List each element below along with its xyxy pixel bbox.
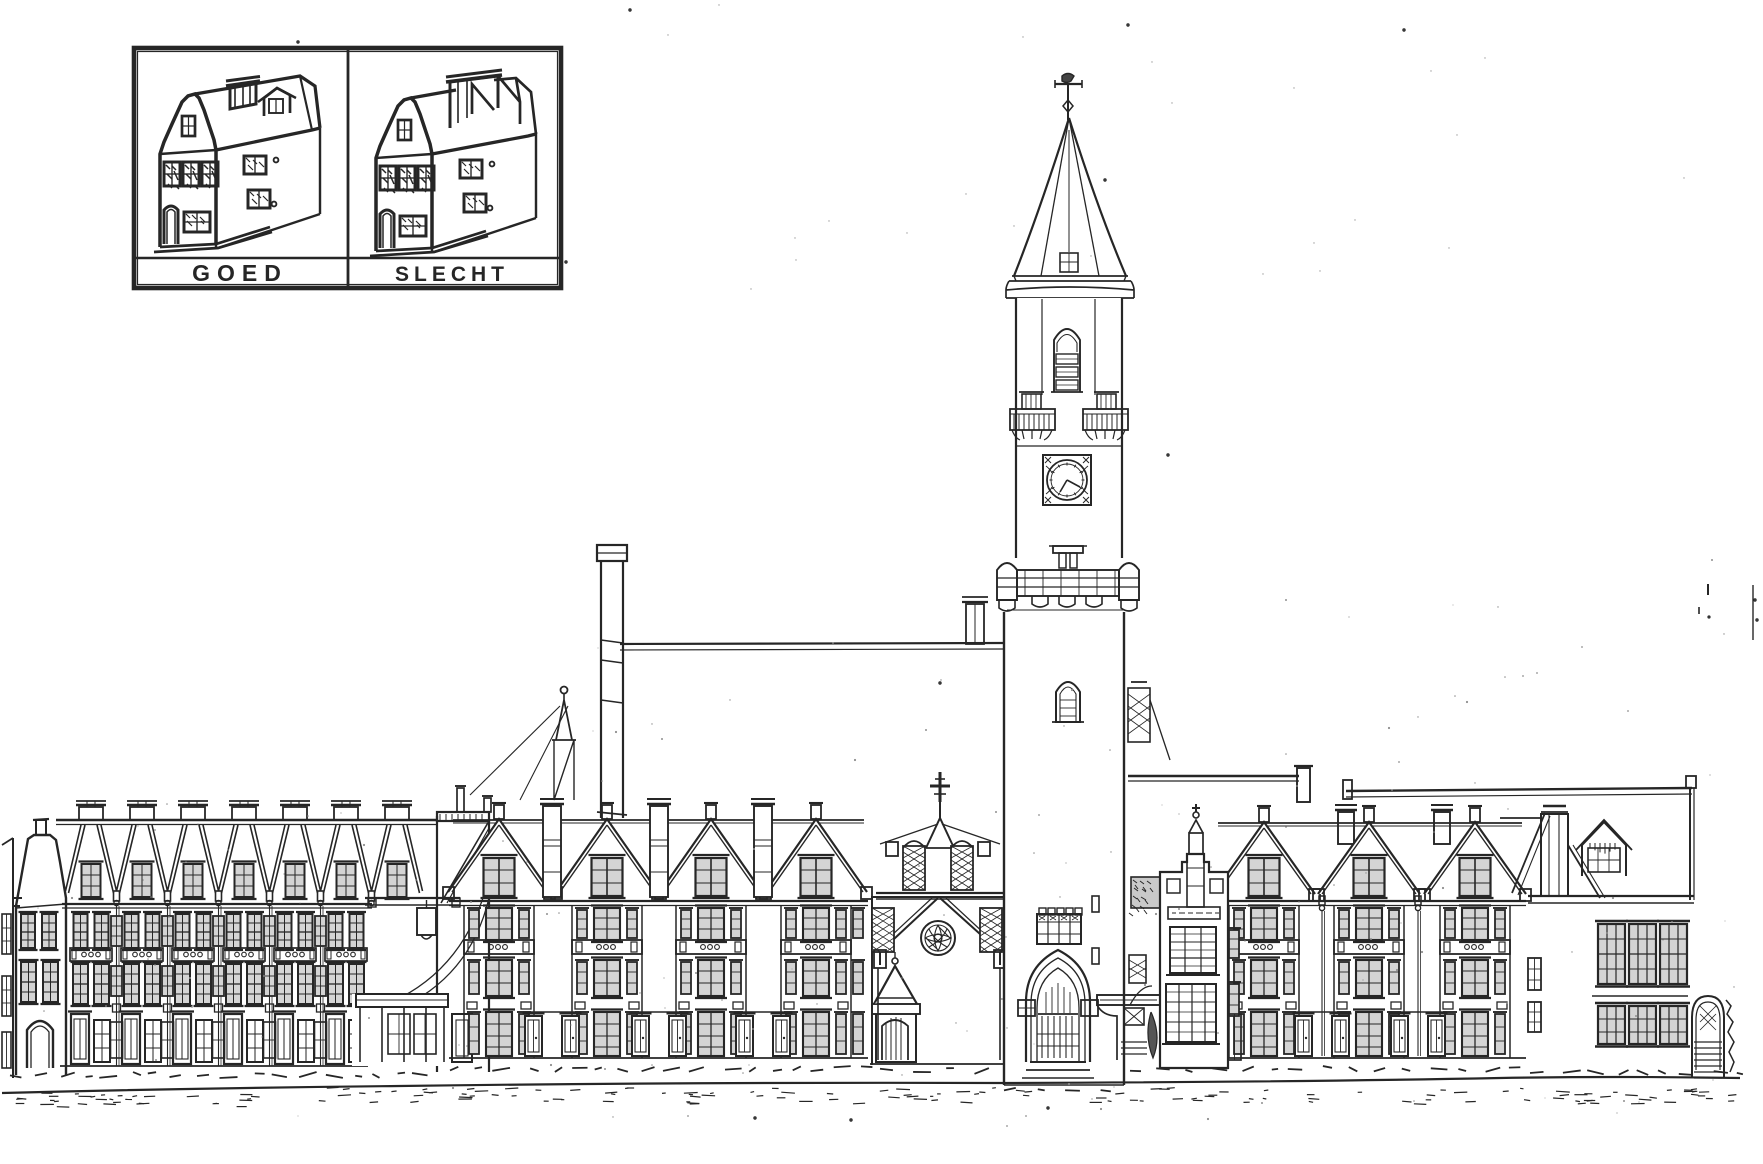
- svg-text:SLECHT: SLECHT: [395, 263, 509, 286]
- svg-text:GOED: GOED: [192, 260, 288, 286]
